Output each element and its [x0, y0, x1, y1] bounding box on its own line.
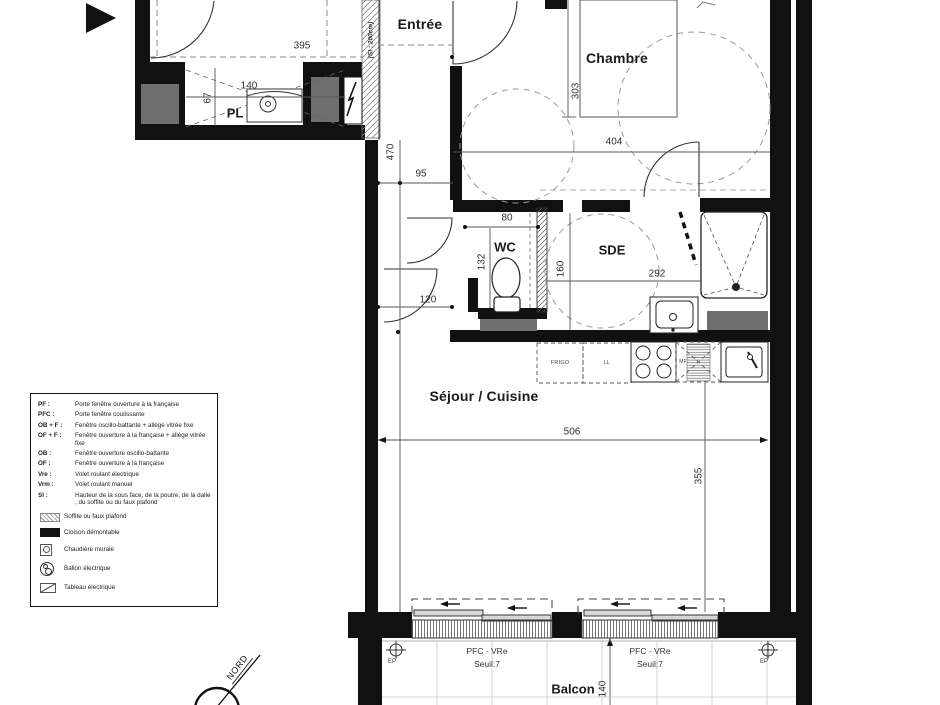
legend-row: Vre : Volet roulant électrique	[38, 471, 211, 478]
ep-drain-icon-left	[386, 641, 406, 659]
dim-404: 404	[606, 137, 623, 148]
legend-text: Chaudière murale	[64, 546, 211, 553]
ep-label-left: EP	[388, 659, 396, 665]
legend-text: Fenêtre oscillo-battante + allège vitrée…	[75, 422, 211, 429]
toilet	[492, 258, 520, 312]
legend-text: Soffite ou faux plafond	[64, 513, 211, 520]
electrical-panel-swatch-icon	[40, 583, 64, 593]
legend-symbol-row: Soffite ou faux plafond	[40, 513, 211, 522]
legend-abbr: OB + F :	[38, 422, 75, 429]
legend-abbr: Vre :	[38, 471, 75, 478]
room-label-wc: WC	[494, 240, 516, 255]
ep-drain-icon-right	[758, 641, 778, 659]
electrical-panel-icon	[344, 77, 362, 124]
legend-box: PF : Porte fenêtre ouverture à la frança…	[30, 393, 218, 607]
legend-symbol-row: Cloison démontable	[40, 528, 211, 537]
window-1-type-label: PFC - VRe	[466, 646, 507, 656]
dim-292: 292	[649, 269, 666, 280]
dim-395: 395	[294, 41, 311, 52]
floor-plan: Entrée Chambre WC SDE Séjour / Cuisine B…	[0, 0, 940, 705]
ep-label-right: EP	[760, 659, 768, 665]
legend-symbol-row: Chaudière murale	[40, 544, 211, 556]
legend-row: PF : Porte fenêtre ouverture à la frança…	[38, 401, 211, 408]
washbasin	[650, 297, 698, 333]
legend-row: SI : Hauteur de la sous face, de la pout…	[38, 492, 211, 506]
section-marker-icon	[86, 3, 116, 33]
legend-abbr: PF :	[38, 401, 75, 408]
dim-67: 67	[203, 92, 214, 103]
dim-80: 80	[501, 213, 512, 224]
sde-door-dashed	[680, 212, 696, 265]
legend-row: OF : Fenêtre ouverture à la française	[38, 460, 211, 467]
legend-symbol-row: Ballon électrique	[40, 562, 211, 576]
legend-abbr: OB :	[38, 450, 75, 457]
window-2-slider	[578, 599, 724, 638]
dim-140-balcon: 140	[598, 681, 609, 698]
legend-row: OB : Fenêtre ouverture oscillo-battante	[38, 450, 211, 457]
dim-95: 95	[415, 169, 426, 180]
legend-text: Cloison démontable	[64, 529, 211, 536]
legend-text: Hauteur de la sous face, de la poutre, d…	[75, 492, 211, 506]
partition-swatch-icon	[40, 528, 64, 537]
window-2-seuil-label: Seuil:7	[637, 659, 663, 669]
room-label-chambre: Chambre	[586, 50, 648, 66]
legend-row: OB + F : Fenêtre oscillo-battante + allè…	[38, 422, 211, 429]
legend-abbr: OF :	[38, 460, 75, 467]
soffit-height-note: (SI : 200cm)	[368, 22, 375, 59]
legend-text: Volet roulant électrique	[75, 471, 211, 478]
legend-text: Porte fenêtre ouverture à la française	[75, 401, 211, 408]
legend-text: Porte fenêtre coulissante	[75, 411, 211, 418]
legend-row: PFC : Porte fenêtre coulissante	[38, 411, 211, 418]
wc-sde-partition	[537, 208, 547, 312]
dim-506: 506	[564, 427, 581, 438]
room-label-sejour: Séjour / Cuisine	[430, 388, 539, 404]
dim-132: 132	[477, 254, 488, 271]
kitchen-sink	[721, 342, 768, 382]
dim-303: 303	[571, 83, 582, 100]
appliance-label-mf: MF	[679, 359, 687, 365]
legend-text: Volet roulant manuel	[75, 481, 211, 488]
window-2-type-label: PFC - VRe	[629, 646, 670, 656]
dim-160: 160	[556, 261, 567, 278]
appliance-label-ll: LL	[604, 360, 611, 366]
dim-355: 355	[694, 468, 705, 485]
legend-text: Fenêtre ouverture oscillo-battante	[75, 450, 211, 457]
legend-abbr: OF + F :	[38, 432, 75, 446]
legend-row: Vrm : Volet roulant manuel	[38, 481, 211, 488]
soffit-swatch-icon	[40, 513, 64, 522]
water-heater	[247, 89, 302, 122]
window-1-seuil-label: Seuil:7	[474, 659, 500, 669]
window-1-slider	[412, 599, 552, 638]
legend-text: Tableau électrique	[64, 584, 211, 591]
hob	[631, 342, 676, 382]
room-label-entree: Entrée	[398, 16, 443, 32]
legend-text: Ballon électrique	[64, 565, 211, 572]
dim-470: 470	[386, 144, 397, 161]
legend-abbr: Vrm :	[38, 481, 75, 488]
legend-text: Fenêtre ouverture à la française	[75, 460, 211, 467]
legend-abbr: SI :	[38, 492, 75, 506]
room-label-sde: SDE	[599, 243, 626, 258]
dim-120: 120	[420, 295, 437, 306]
boiler-swatch-icon	[40, 544, 64, 556]
legend-text: Fenêtre ouverture à la française + allèg…	[75, 432, 211, 446]
shower	[701, 212, 767, 298]
appliance-label-frigo: FRIGO	[551, 360, 569, 366]
water-heater-swatch-icon	[40, 562, 64, 576]
legend-symbol-row: Tableau électrique	[40, 583, 211, 593]
legend-abbr: PFC :	[38, 411, 75, 418]
dim-140-pl: 140	[241, 81, 258, 92]
room-label-balcon: Balcon	[551, 682, 594, 697]
legend-row: OF + F : Fenêtre ouverture à la français…	[38, 432, 211, 446]
room-label-pl: PL	[227, 106, 244, 121]
